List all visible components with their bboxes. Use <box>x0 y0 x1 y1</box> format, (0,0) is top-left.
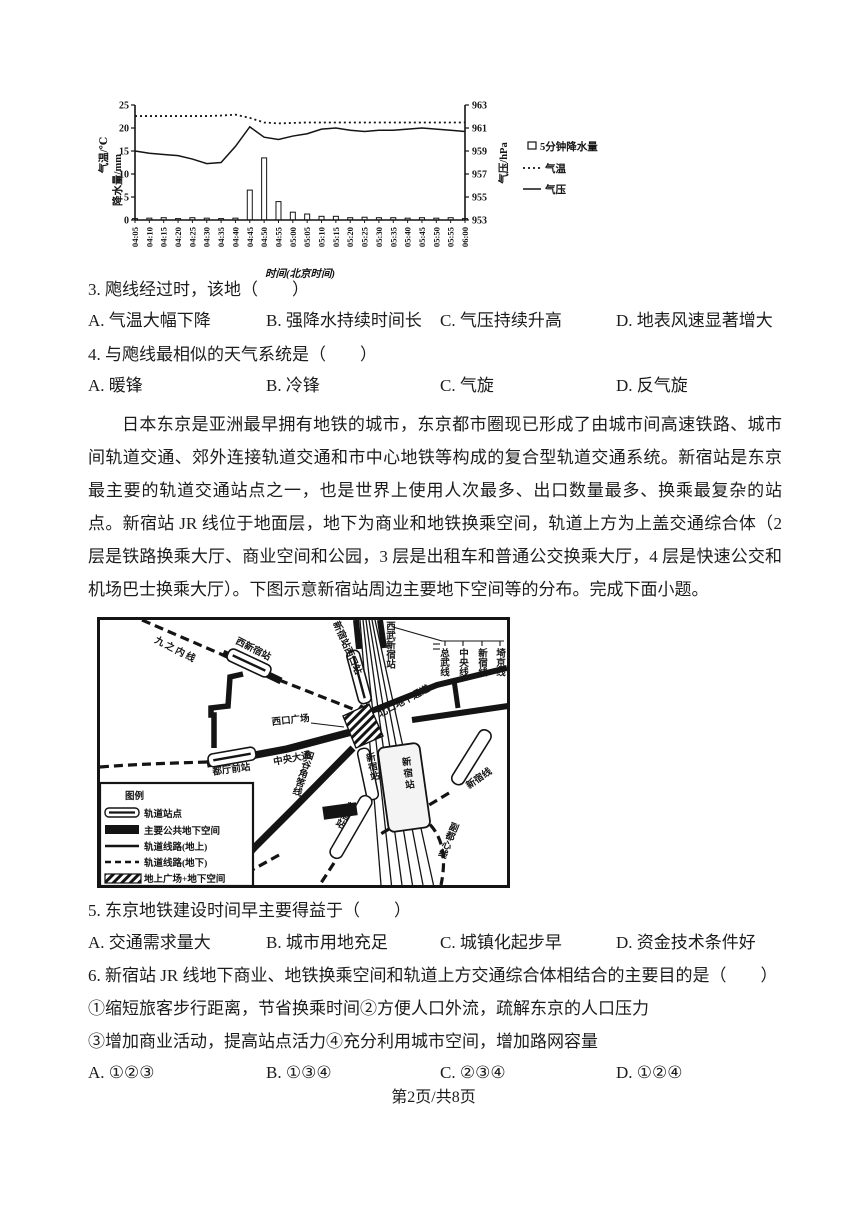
question-6-sub1: ①缩短旅客步行距离，节省换乘时间②方便人口外流，疏解东京的人口压力 <box>88 998 649 1020</box>
legend-bar-label: 5分钟降水量 <box>540 140 598 153</box>
q6-option-a: A. ①②③ <box>88 1062 155 1084</box>
label-shinjuku-jr-line: 新宿线 <box>476 647 488 677</box>
svg-text:10: 10 <box>119 170 129 181</box>
legend-pressure-label: 气压 <box>544 183 566 196</box>
q5-option-c: C. 城镇化起步早 <box>440 932 562 954</box>
q5-option-a: A. 交通需求量大 <box>88 932 211 954</box>
label-sobu-line: 总武线 <box>438 647 450 677</box>
shinjuku-map: 图例 轨道站点 主要公共地下空间 轨道线路(地上) 轨道线路(地下) 地上广场+… <box>97 617 510 888</box>
question-4: 4. 与飑线最相似的天气系统是（ ） <box>88 344 377 366</box>
q4-option-a: A. 暖锋 <box>88 375 143 397</box>
svg-text:25: 25 <box>119 101 129 112</box>
svg-text:04:20: 04:20 <box>173 227 183 247</box>
svg-text:04:15: 04:15 <box>159 227 169 247</box>
q3-option-c: C. 气压持续升高 <box>440 310 562 332</box>
q3-option-d: D. 地表风速显著增大 <box>616 310 773 332</box>
svg-text:05:00: 05:00 <box>288 227 298 247</box>
q6-option-b: B. ①③④ <box>266 1062 332 1084</box>
q5-option-d: D. 资金技术条件好 <box>616 932 756 954</box>
svg-text:05:55: 05:55 <box>446 227 456 247</box>
question-3: 3. 飑线经过时，该地（ ） <box>88 279 309 301</box>
svg-text:955: 955 <box>472 193 487 204</box>
svg-text:04:55: 04:55 <box>273 227 283 247</box>
svg-text:959: 959 <box>472 147 487 158</box>
question-6: 6. 新宿站 JR 线地下商业、地铁换乘空间和轨道上方交通综合体相结合的主要目的… <box>88 965 777 987</box>
chart-legend: 5分钟降水量 气温 气压 <box>523 140 598 196</box>
map-legend: 图例 轨道站点 主要公共地下空间 轨道线路(地上) 轨道线路(地下) 地上广场+… <box>100 783 253 886</box>
svg-text:05:30: 05:30 <box>374 227 384 247</box>
svg-text:15: 15 <box>119 147 129 158</box>
svg-text:05:15: 05:15 <box>331 227 341 247</box>
svg-text:961: 961 <box>472 124 487 135</box>
label-seibu-shinjuku: 西武新宿站 <box>384 621 396 669</box>
label-chuo-line: 中央线 <box>457 647 469 677</box>
weather-chart: 气温/℃ 降水量/mm 气压/hPa 时间(北京时间) 5分钟降水量 气温 气压… <box>95 85 655 285</box>
svg-text:05:40: 05:40 <box>403 227 413 247</box>
legend-underground-space-symbol <box>105 825 139 834</box>
map-legend-item-plaza: 地上广场+地下空间 <box>144 873 225 885</box>
svg-text:06:00: 06:00 <box>460 227 470 247</box>
map-legend-title: 图例 <box>125 790 144 802</box>
svg-text:04:35: 04:35 <box>216 227 226 247</box>
svg-text:04:30: 04:30 <box>202 227 212 247</box>
page-number: 第2页/共8页 <box>0 1083 867 1107</box>
q5-option-b: B. 城市用地充足 <box>266 932 388 954</box>
q3-option-b: B. 强降水持续时间长 <box>266 310 422 332</box>
legend-bar-swatch <box>528 142 536 149</box>
svg-text:953: 953 <box>472 216 487 227</box>
svg-text:05:20: 05:20 <box>345 227 355 247</box>
svg-text:04:45: 04:45 <box>245 227 255 247</box>
svg-text:05:25: 05:25 <box>360 227 370 247</box>
svg-text:05:45: 05:45 <box>417 227 427 247</box>
map-legend-item-space: 主要公共地下空间 <box>144 825 220 837</box>
label-saikyo-line: 埼京线 <box>494 647 506 677</box>
q4-option-d: D. 反气旋 <box>616 375 688 397</box>
svg-text:5: 5 <box>124 193 129 204</box>
q3-option-a: A. 气温大幅下降 <box>88 310 211 332</box>
svg-text:05:35: 05:35 <box>388 227 398 247</box>
svg-text:957: 957 <box>472 170 487 181</box>
chart-plot-area: 051015202595395595795996196304:0504:1004… <box>119 101 487 248</box>
map-legend-item-underground: 轨道线路(地下) <box>144 857 207 869</box>
svg-text:04:50: 04:50 <box>259 227 269 247</box>
passage-text: 日本东京是亚洲最早拥有地铁的城市，东京都市圈现已形成了由城市间高速铁路、城市间轨… <box>88 408 782 606</box>
svg-text:20: 20 <box>119 124 129 135</box>
exam-page: 气温/℃ 降水量/mm 气压/hPa 时间(北京时间) 5分钟降水量 气温 气压… <box>0 0 867 1227</box>
svg-text:04:40: 04:40 <box>230 227 240 247</box>
svg-text:04:10: 04:10 <box>144 227 154 247</box>
svg-text:04:05: 04:05 <box>130 227 140 247</box>
svg-text:05:05: 05:05 <box>302 227 312 247</box>
map-legend-item-station: 轨道站点 <box>144 808 183 820</box>
question-6-sub2: ③增加商业活动，提高站点活力④充分利用城市空间，增加路网容量 <box>88 1031 598 1053</box>
svg-text:05:50: 05:50 <box>431 227 441 247</box>
svg-text:963: 963 <box>472 101 487 112</box>
q4-option-c: C. 气旋 <box>440 375 494 397</box>
svg-text:0: 0 <box>124 216 129 227</box>
chart-y-right-label: 气压/hPa <box>497 142 510 185</box>
q6-option-c: C. ②③④ <box>440 1062 506 1084</box>
question-5: 5. 东京地铁建设时间早主要得益于（ ） <box>88 900 411 922</box>
map-legend-item-surface: 轨道线路(地上) <box>144 841 207 853</box>
q4-option-b: B. 冷锋 <box>266 375 320 397</box>
chart-y-left-label-1: 气温/℃ <box>97 136 110 174</box>
q6-option-d: D. ①②④ <box>616 1062 683 1084</box>
legend-temp-label: 气温 <box>544 162 566 175</box>
svg-text:05:10: 05:10 <box>317 227 327 247</box>
legend-plaza-symbol <box>105 874 141 883</box>
svg-text:04:25: 04:25 <box>187 227 197 247</box>
